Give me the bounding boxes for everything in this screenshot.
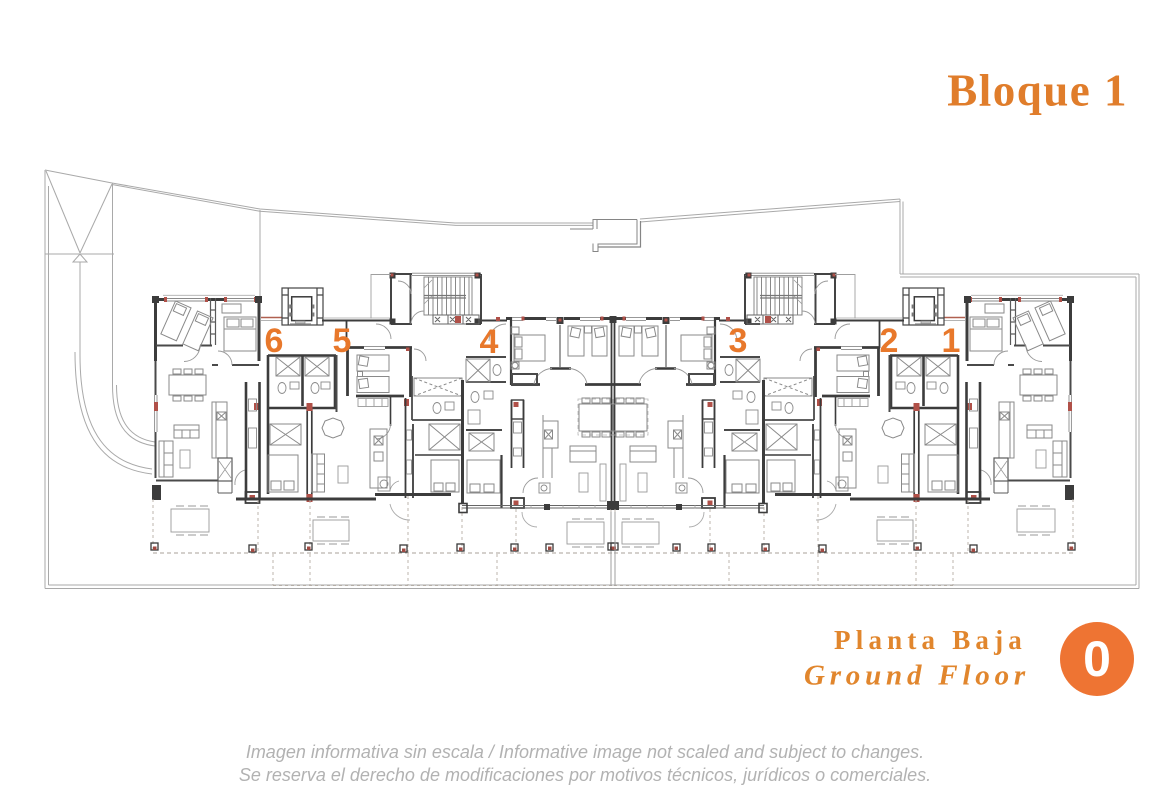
svg-text:0: 0 [1083, 631, 1111, 687]
svg-text:Imagen informativa sin escala: Imagen informativa sin escala / Informat… [246, 742, 924, 762]
svg-text:6: 6 [265, 322, 284, 360]
svg-text:Se reserva el derecho de modif: Se reserva el derecho de modificaciones … [239, 765, 931, 785]
svg-text:2: 2 [880, 322, 899, 360]
svg-text:5: 5 [333, 322, 352, 360]
svg-text:Planta Baja: Planta Baja [834, 625, 1027, 655]
svg-text:3: 3 [729, 322, 748, 360]
svg-text:1: 1 [942, 322, 961, 360]
svg-text:Bloque 1: Bloque 1 [947, 66, 1128, 116]
svg-text:4: 4 [480, 323, 499, 361]
svg-text:Ground Floor: Ground Floor [804, 660, 1030, 692]
